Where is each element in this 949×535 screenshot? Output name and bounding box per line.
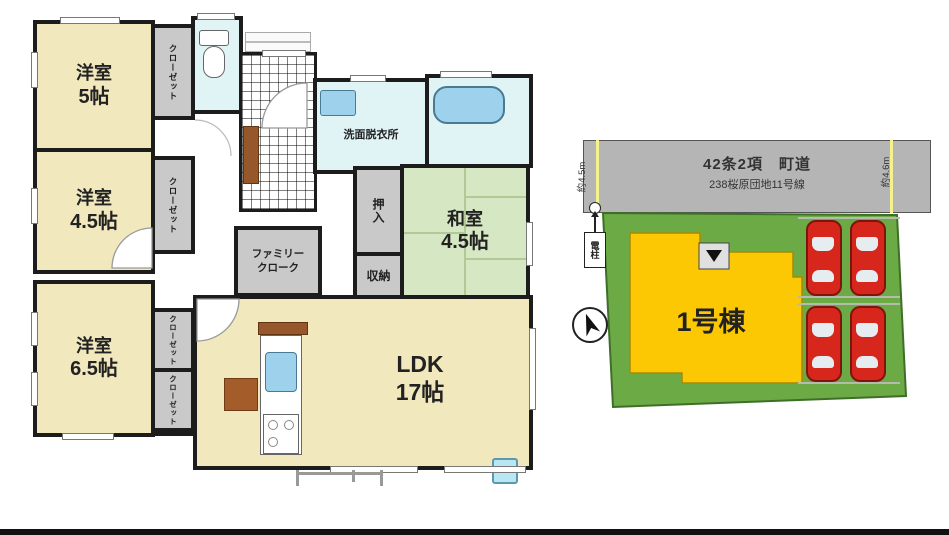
car-icon [850, 220, 886, 296]
leader-arrow-icon [591, 211, 599, 217]
car-rear-window [812, 356, 834, 368]
car-windshield [856, 237, 878, 251]
car-icon [806, 306, 842, 382]
car-windshield [812, 323, 834, 337]
stall-line [798, 303, 900, 305]
car-body [850, 220, 886, 296]
utility-pole-labelbox: 電柱 [584, 232, 606, 268]
stall-line [798, 217, 900, 219]
stall-line [798, 296, 900, 298]
car-windshield [856, 323, 878, 337]
room-japanese-label: 和室 4.5帖 [441, 209, 489, 255]
car-body [806, 220, 842, 296]
room-size: 4.5帖 [441, 230, 489, 254]
car-windshield [812, 237, 834, 251]
car-rear-window [856, 270, 878, 282]
car-rear-window [856, 356, 878, 368]
bottom-border-bar [0, 529, 949, 535]
car-icon [806, 220, 842, 296]
car-icon [850, 306, 886, 382]
car-rear-window [812, 270, 834, 282]
room-name: 和室 [441, 209, 489, 231]
utility-pole-label: 電柱 [589, 241, 602, 259]
floorplan-page: 洋室 5帖 クローゼット 洋室 4.5帖 クローゼット 洋室 6.5帖 [0, 0, 949, 535]
utility-pole-leader-line [594, 216, 596, 232]
car-body [806, 306, 842, 382]
car-body [850, 306, 886, 382]
north-arrow-icon [572, 307, 608, 343]
stall-line [798, 382, 900, 384]
building-label: 1号棟 [636, 300, 786, 339]
